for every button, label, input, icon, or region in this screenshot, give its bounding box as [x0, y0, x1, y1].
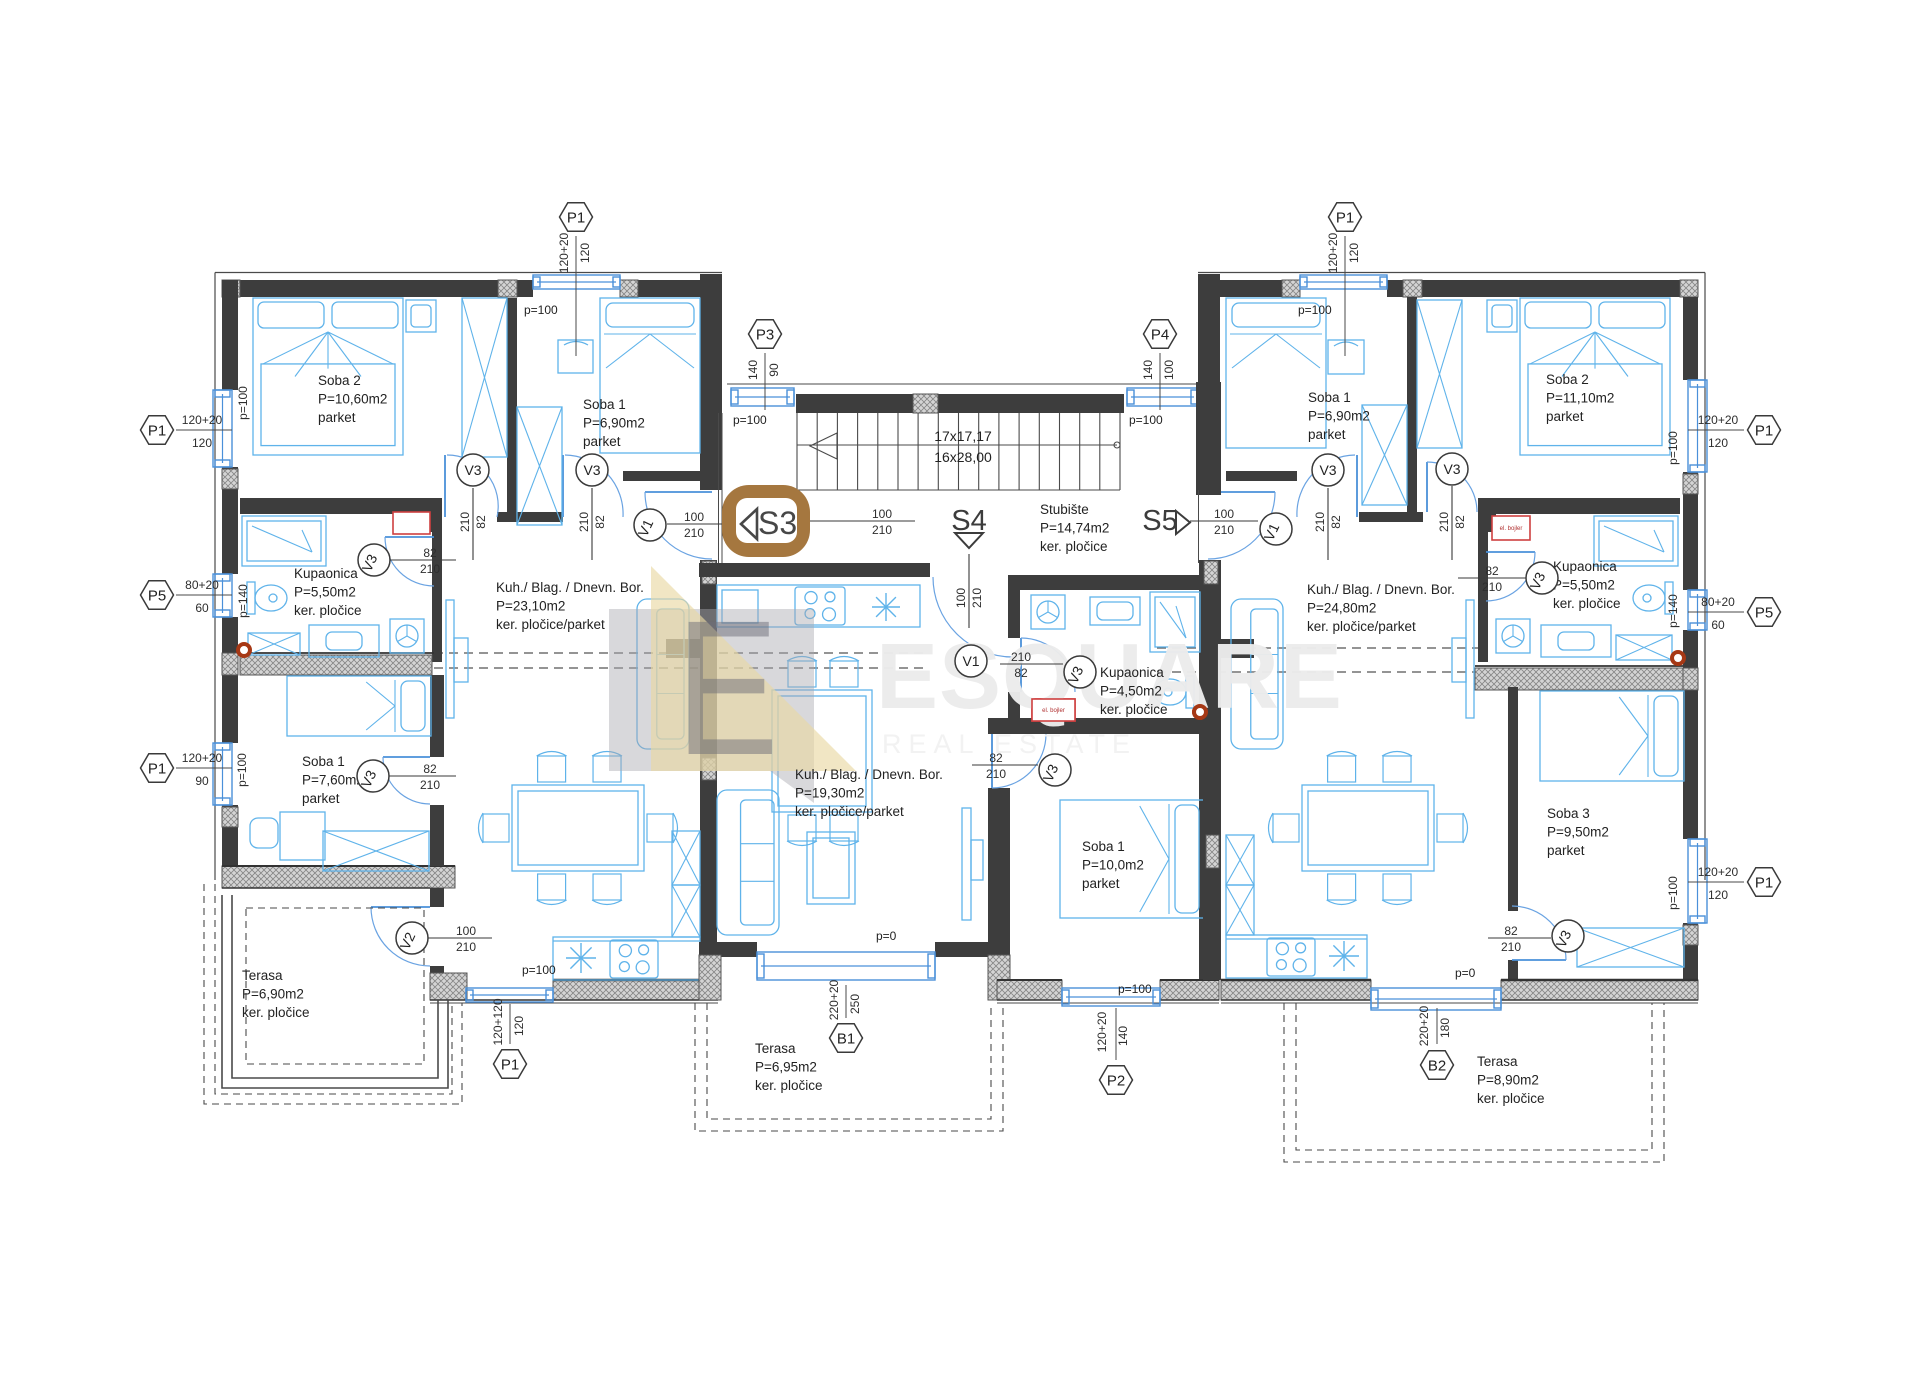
svg-text:P=24,80m2: P=24,80m2 — [1307, 601, 1376, 616]
svg-text:ker. pločice/parket: ker. pločice/parket — [1307, 619, 1416, 634]
svg-text:V1: V1 — [962, 653, 979, 669]
svg-text:parket: parket — [302, 791, 340, 806]
svg-text:90: 90 — [195, 774, 209, 788]
svg-text:P4: P4 — [1151, 327, 1169, 344]
svg-text:180: 180 — [1438, 1018, 1452, 1038]
svg-text:82: 82 — [1014, 666, 1028, 680]
svg-text:p=100: p=100 — [1118, 982, 1152, 996]
svg-text:140: 140 — [1116, 1026, 1130, 1046]
svg-text:P1: P1 — [148, 423, 166, 440]
svg-text:P=11,10m2: P=11,10m2 — [1546, 391, 1614, 406]
svg-text:parket: parket — [1082, 876, 1120, 891]
svg-text:p=0: p=0 — [1455, 966, 1476, 980]
svg-text:80+20: 80+20 — [1701, 595, 1735, 609]
svg-text:82: 82 — [989, 751, 1003, 765]
svg-text:210: 210 — [1313, 512, 1327, 532]
svg-text:P=23,10m2: P=23,10m2 — [496, 599, 565, 614]
svg-text:P=5,50m2: P=5,50m2 — [294, 585, 356, 600]
svg-text:210: 210 — [1501, 940, 1521, 954]
svg-text:120: 120 — [192, 436, 212, 450]
svg-text:82: 82 — [423, 762, 437, 776]
svg-text:210: 210 — [970, 588, 984, 608]
svg-text:Kupaonica: Kupaonica — [294, 566, 358, 581]
svg-text:120+20: 120+20 — [1698, 413, 1739, 427]
svg-text:p=0: p=0 — [876, 929, 897, 943]
svg-text:P=9,50m2: P=9,50m2 — [1547, 825, 1609, 840]
svg-text:Kuh./ Blag. / Dnevn. Bor.: Kuh./ Blag. / Dnevn. Bor. — [795, 767, 943, 782]
svg-text:P=6,90m2: P=6,90m2 — [1308, 409, 1370, 424]
svg-text:E: E — [676, 581, 778, 795]
svg-text:120+20: 120+20 — [182, 413, 223, 427]
svg-text:140: 140 — [1141, 360, 1155, 380]
svg-text:P5: P5 — [148, 588, 166, 605]
svg-text:P=14,74m2: P=14,74m2 — [1040, 521, 1109, 536]
svg-text:82: 82 — [423, 546, 437, 560]
svg-text:82: 82 — [1504, 924, 1518, 938]
svg-text:210: 210 — [577, 512, 591, 532]
svg-text:82: 82 — [1329, 515, 1343, 529]
svg-text:ker. pločice: ker. pločice — [755, 1078, 823, 1093]
svg-text:210: 210 — [1214, 523, 1234, 537]
svg-text:p=140: p=140 — [236, 584, 250, 618]
svg-text:210: 210 — [1011, 650, 1031, 664]
svg-text:Soba 1: Soba 1 — [583, 397, 626, 412]
svg-text:Soba 2: Soba 2 — [1546, 372, 1589, 387]
svg-text:ker. pločice: ker. pločice — [1040, 539, 1108, 554]
svg-text:220+20: 220+20 — [827, 979, 841, 1020]
svg-text:P=10,0m2: P=10,0m2 — [1082, 858, 1144, 873]
svg-text:ker. pločice: ker. pločice — [242, 1005, 310, 1020]
svg-text:p=100: p=100 — [1129, 413, 1163, 427]
svg-text:p=100: p=100 — [1666, 431, 1680, 465]
svg-text:ker. pločice: ker. pločice — [294, 603, 362, 618]
svg-text:100: 100 — [456, 924, 476, 938]
svg-text:ker. pločice: ker. pločice — [1553, 596, 1621, 611]
svg-text:REAL ESTATE: REAL ESTATE — [882, 729, 1137, 759]
svg-text:P1: P1 — [1336, 210, 1354, 227]
svg-text:Terasa: Terasa — [755, 1041, 796, 1056]
svg-text:ker. pločice: ker. pločice — [1477, 1091, 1545, 1106]
svg-text:Soba 1: Soba 1 — [302, 754, 345, 769]
svg-text:120+20: 120+20 — [557, 232, 571, 273]
svg-text:P=10,60m2: P=10,60m2 — [318, 392, 387, 407]
svg-text:Soba 2: Soba 2 — [318, 373, 361, 388]
svg-text:ker. pločice: ker. pločice — [1100, 702, 1168, 717]
svg-text:100: 100 — [1162, 360, 1176, 380]
svg-text:Kuh./ Blag. / Dnevn. Bor.: Kuh./ Blag. / Dnevn. Bor. — [496, 580, 644, 595]
svg-text:P5: P5 — [1755, 605, 1773, 622]
svg-text:120+120: 120+120 — [491, 998, 505, 1045]
svg-text:210: 210 — [1437, 512, 1451, 532]
svg-text:P=5,50m2: P=5,50m2 — [1553, 578, 1615, 593]
svg-text:p=100: p=100 — [733, 413, 767, 427]
svg-text:Soba 1: Soba 1 — [1082, 839, 1125, 854]
svg-text:P1: P1 — [1755, 875, 1773, 892]
svg-text:p=100: p=100 — [522, 963, 556, 977]
svg-text:p=100: p=100 — [524, 303, 558, 317]
svg-text:P3: P3 — [756, 327, 774, 344]
svg-text:p=100: p=100 — [235, 753, 249, 787]
svg-text:Kuh./ Blag. / Dnevn. Bor.: Kuh./ Blag. / Dnevn. Bor. — [1307, 582, 1455, 597]
svg-text:P=19,30m2: P=19,30m2 — [795, 786, 864, 801]
svg-text:Stubište: Stubište — [1040, 502, 1089, 517]
svg-text:82: 82 — [474, 515, 488, 529]
svg-text:Soba 3: Soba 3 — [1547, 806, 1590, 821]
svg-text:210: 210 — [420, 778, 440, 792]
svg-text:B1: B1 — [837, 1031, 855, 1048]
svg-text:100: 100 — [872, 507, 892, 521]
svg-text:60: 60 — [195, 601, 209, 615]
svg-text:16x28,00: 16x28,00 — [934, 449, 992, 465]
svg-text:220+20: 220+20 — [1417, 1005, 1431, 1046]
svg-text:p=100: p=100 — [1666, 876, 1680, 910]
svg-text:Kupaonica: Kupaonica — [1553, 559, 1617, 574]
svg-text:ker. pločice/parket: ker. pločice/parket — [496, 617, 605, 632]
svg-text:V3: V3 — [1319, 462, 1336, 478]
svg-text:Terasa: Terasa — [1477, 1054, 1518, 1069]
svg-text:V3: V3 — [464, 462, 481, 478]
svg-text:S5: S5 — [1142, 505, 1177, 537]
svg-text:82: 82 — [593, 515, 607, 529]
svg-text:210: 210 — [456, 940, 476, 954]
svg-text:210: 210 — [458, 512, 472, 532]
svg-text:120: 120 — [1347, 243, 1361, 263]
svg-text:100: 100 — [1214, 507, 1234, 521]
svg-text:p=100: p=100 — [236, 386, 250, 420]
svg-text:120: 120 — [1708, 888, 1728, 902]
svg-text:140: 140 — [746, 360, 760, 380]
svg-text:Terasa: Terasa — [242, 968, 283, 983]
svg-text:parket: parket — [583, 434, 621, 449]
svg-text:P1: P1 — [1755, 423, 1773, 440]
svg-text:S3: S3 — [758, 505, 797, 541]
svg-text:210: 210 — [986, 767, 1006, 781]
svg-text:P=6,95m2: P=6,95m2 — [755, 1060, 817, 1075]
svg-text:ker. pločice/parket: ker. pločice/parket — [795, 804, 904, 819]
svg-text:120: 120 — [1708, 436, 1728, 450]
svg-text:60: 60 — [1711, 618, 1725, 632]
svg-text:parket: parket — [1546, 409, 1584, 424]
svg-text:82: 82 — [1453, 515, 1467, 529]
svg-text:p=140: p=140 — [1666, 594, 1680, 628]
svg-text:Kupaonica: Kupaonica — [1100, 665, 1164, 680]
svg-text:P2: P2 — [1107, 1073, 1125, 1090]
svg-text:parket: parket — [1308, 427, 1346, 442]
svg-text:90: 90 — [767, 363, 781, 377]
svg-text:el. bojler: el. bojler — [1042, 708, 1065, 714]
svg-text:17x17,17: 17x17,17 — [934, 428, 992, 444]
svg-text:100: 100 — [684, 510, 704, 524]
svg-text:210: 210 — [420, 562, 440, 576]
svg-text:Soba 1: Soba 1 — [1308, 390, 1351, 405]
svg-text:V3: V3 — [1443, 461, 1460, 477]
svg-text:P=4,50m2: P=4,50m2 — [1100, 684, 1162, 699]
svg-text:80+20: 80+20 — [185, 578, 219, 592]
svg-text:P1: P1 — [148, 761, 166, 778]
svg-text:P1: P1 — [567, 210, 585, 227]
svg-text:82: 82 — [1485, 564, 1499, 578]
svg-text:120+20: 120+20 — [182, 751, 223, 765]
svg-text:parket: parket — [318, 410, 356, 425]
svg-text:120: 120 — [512, 1016, 526, 1036]
svg-text:P=6,90m2: P=6,90m2 — [583, 416, 645, 431]
svg-text:p=100: p=100 — [1298, 303, 1332, 317]
svg-text:el. bojler: el. bojler — [1500, 526, 1523, 532]
svg-text:210: 210 — [872, 523, 892, 537]
svg-text:P=6,90m2: P=6,90m2 — [242, 987, 304, 1002]
svg-text:B2: B2 — [1428, 1058, 1446, 1075]
svg-text:210: 210 — [684, 526, 704, 540]
svg-text:120+20: 120+20 — [1095, 1011, 1109, 1052]
svg-text:P=8,90m2: P=8,90m2 — [1477, 1073, 1539, 1088]
svg-text:210: 210 — [1482, 580, 1502, 594]
svg-text:250: 250 — [848, 994, 862, 1014]
svg-text:120+20: 120+20 — [1326, 232, 1340, 273]
svg-text:120: 120 — [578, 243, 592, 263]
svg-text:P=7,60m2: P=7,60m2 — [302, 773, 364, 788]
svg-text:parket: parket — [1547, 843, 1585, 858]
svg-text:120+20: 120+20 — [1698, 865, 1739, 879]
svg-text:P1: P1 — [501, 1057, 519, 1074]
svg-text:V3: V3 — [583, 462, 600, 478]
svg-text:100: 100 — [954, 588, 968, 608]
